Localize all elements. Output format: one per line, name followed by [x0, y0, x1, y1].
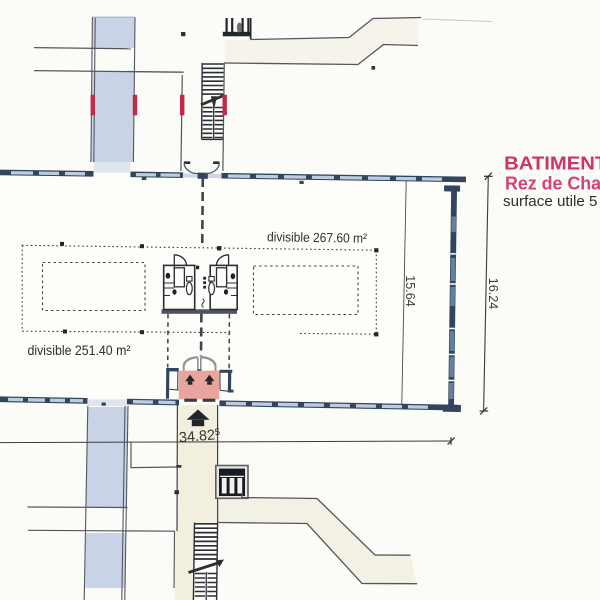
- svg-text:Rez de Chau: Rez de Chau: [505, 174, 600, 194]
- svg-text:surface utile 5: surface utile 5: [503, 194, 598, 210]
- svg-text:BATIMENT: BATIMENT: [504, 153, 600, 173]
- svg-text:divisible 267.60 m²: divisible 267.60 m²: [267, 229, 368, 245]
- svg-text:divisible 251.40 m²: divisible 251.40 m²: [28, 343, 131, 358]
- svg-text:15.64: 15.64: [403, 275, 417, 307]
- svg-text:34.825: 34.825: [178, 427, 220, 446]
- svg-text:16.24: 16.24: [486, 278, 500, 310]
